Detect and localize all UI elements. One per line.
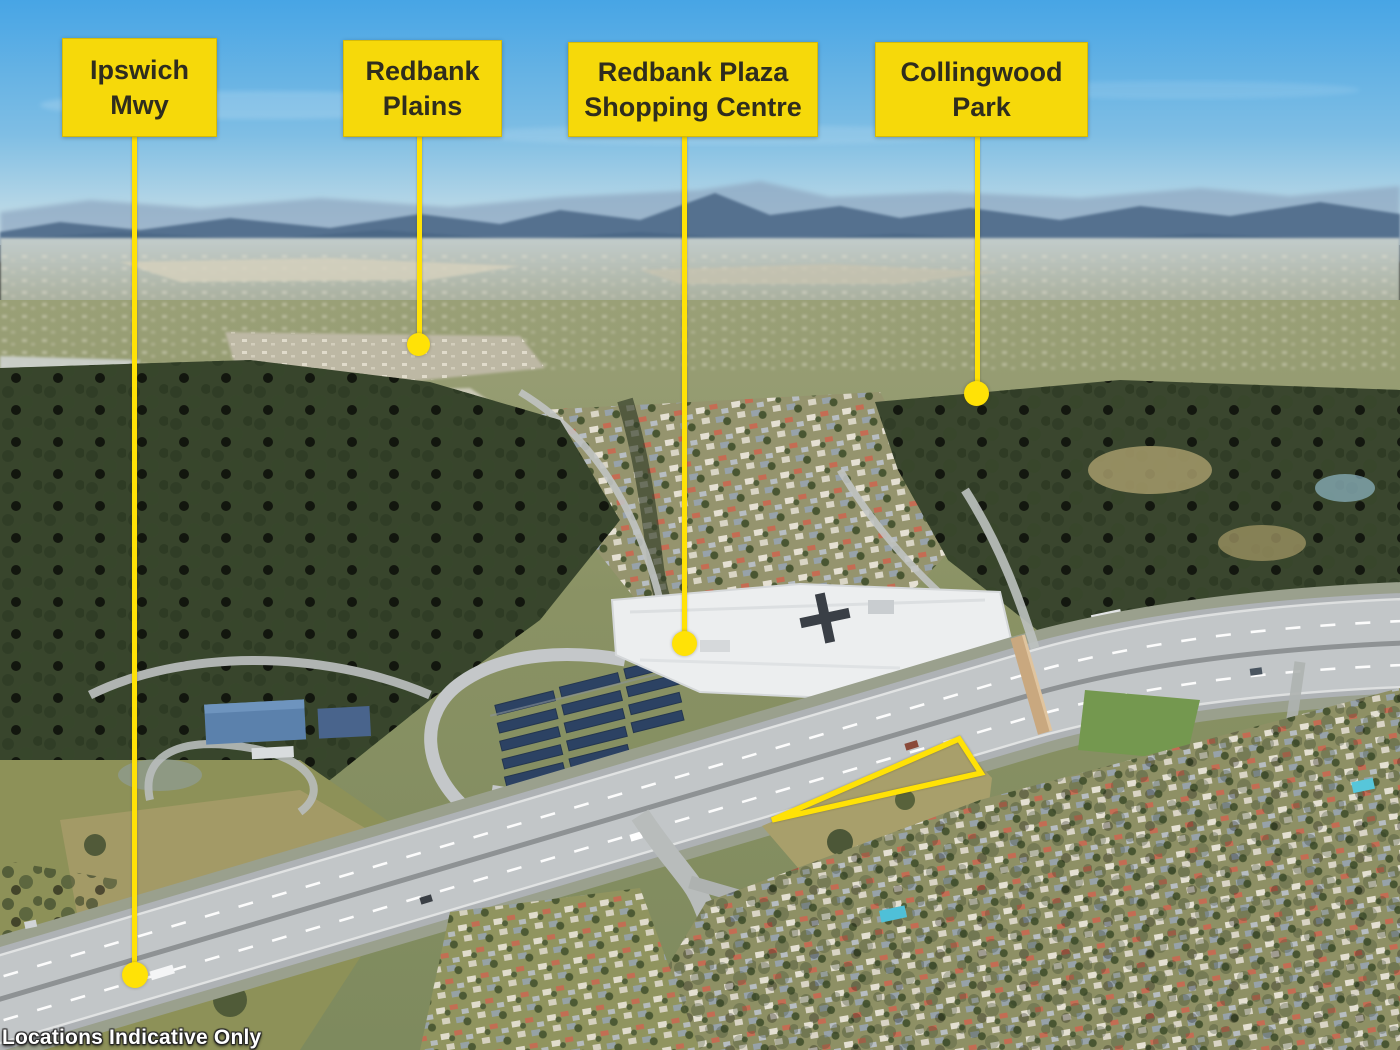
- callout-redbank-plains-line2: Plains: [383, 89, 463, 123]
- callout-ipswich-mwy: Ipswich Mwy: [62, 38, 217, 137]
- callout-collingwood-park: Collingwood Park: [875, 42, 1088, 137]
- callout-redbank-plaza-line2: Shopping Centre: [584, 90, 802, 124]
- disclaimer-text: Locations Indicative Only: [2, 1026, 261, 1050]
- annotated-aerial-photo: Ipswich Mwy Redbank Plains Redbank Plaza…: [0, 0, 1400, 1050]
- callout-ipswich-mwy-line2: Mwy: [110, 88, 169, 122]
- callout-redbank-plains-line1: Redbank: [365, 54, 479, 88]
- callout-redbank-plaza: Redbank Plaza Shopping Centre: [568, 42, 818, 137]
- callout-redbank-plaza-line1: Redbank Plaza: [598, 55, 789, 89]
- aerial-photo-background: [0, 0, 1400, 1050]
- callout-collingwood-park-line1: Collingwood: [901, 55, 1063, 89]
- callout-ipswich-mwy-line1: Ipswich: [90, 53, 189, 87]
- callout-redbank-plains: Redbank Plains: [343, 40, 502, 137]
- callout-collingwood-park-line2: Park: [952, 90, 1011, 124]
